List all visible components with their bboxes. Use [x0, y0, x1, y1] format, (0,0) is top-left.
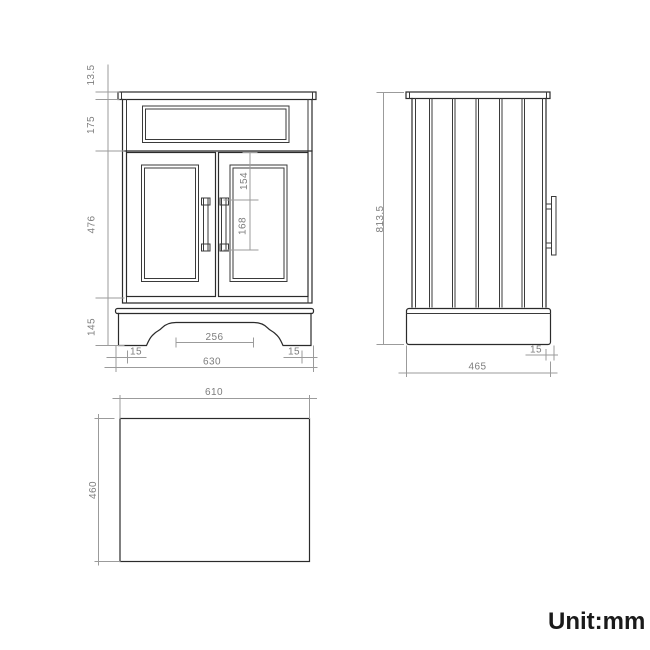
unit-label: Unit:mm [548, 608, 645, 635]
front-base-slab [116, 309, 314, 314]
dim-overall-width: 630 [203, 357, 221, 368]
front-body-inner-stiles [127, 100, 309, 304]
front-door-left-panel-outer [142, 165, 199, 282]
front-handle-left [202, 198, 211, 251]
front-door-left [127, 153, 216, 297]
front-dim-chain-ticks [96, 92, 124, 346]
dim-overall-height: 813.5 [375, 205, 386, 232]
dim-handle-projection: 15 [530, 345, 542, 356]
front-countertop [118, 92, 316, 100]
dim-overall-depth: 465 [469, 362, 487, 373]
side-countertop [406, 92, 550, 99]
dim-countertop-width: 610 [205, 387, 223, 398]
dim-handle-length: 168 [238, 217, 249, 235]
dim-base-height: 145 [87, 318, 98, 336]
side-view-dimensions: 813.5 15 465 [375, 93, 558, 377]
dim-door-height: 476 [87, 216, 98, 234]
front-drawer-panel-outer [143, 106, 290, 143]
front-view-dimensions: 13.5 175 476 145 154 168 256 15 15 630 [86, 64, 317, 371]
dim-door-top-to-handle: 154 [239, 172, 250, 190]
front-handle-right [220, 198, 229, 251]
cabinet-dimension-drawing: 13.5 175 476 145 154 168 256 15 15 630 [0, 0, 650, 650]
front-drawer-panel-inner [146, 109, 287, 140]
dim-upper-panel-height: 175 [86, 116, 97, 134]
top-width-dim-lines [113, 396, 317, 419]
top-view-outline [120, 419, 310, 562]
side-panel-grooves [430, 99, 525, 308]
dim-countertop-thickness: 13.5 [86, 64, 97, 85]
front-door-right [219, 153, 309, 297]
dim-base-margin-right: 15 [288, 347, 300, 358]
dim-base-margin-left: 15 [130, 347, 142, 358]
dim-base-cutout-width: 256 [206, 332, 224, 343]
front-view-cabinet-outline [116, 92, 317, 346]
dim-countertop-depth: 460 [88, 481, 99, 499]
front-door-left-panel-inner [145, 168, 196, 279]
top-view-dimensions: 610 460 [88, 387, 317, 565]
front-view: 13.5 175 476 145 154 168 256 15 15 630 [86, 64, 317, 371]
side-handle [546, 197, 556, 256]
side-view: 813.5 15 465 [375, 92, 558, 377]
technical-drawing-page: 13.5 175 476 145 154 168 256 15 15 630 [0, 0, 650, 650]
top-view: 610 460 [88, 387, 317, 565]
side-view-cabinet-outline [406, 92, 556, 345]
